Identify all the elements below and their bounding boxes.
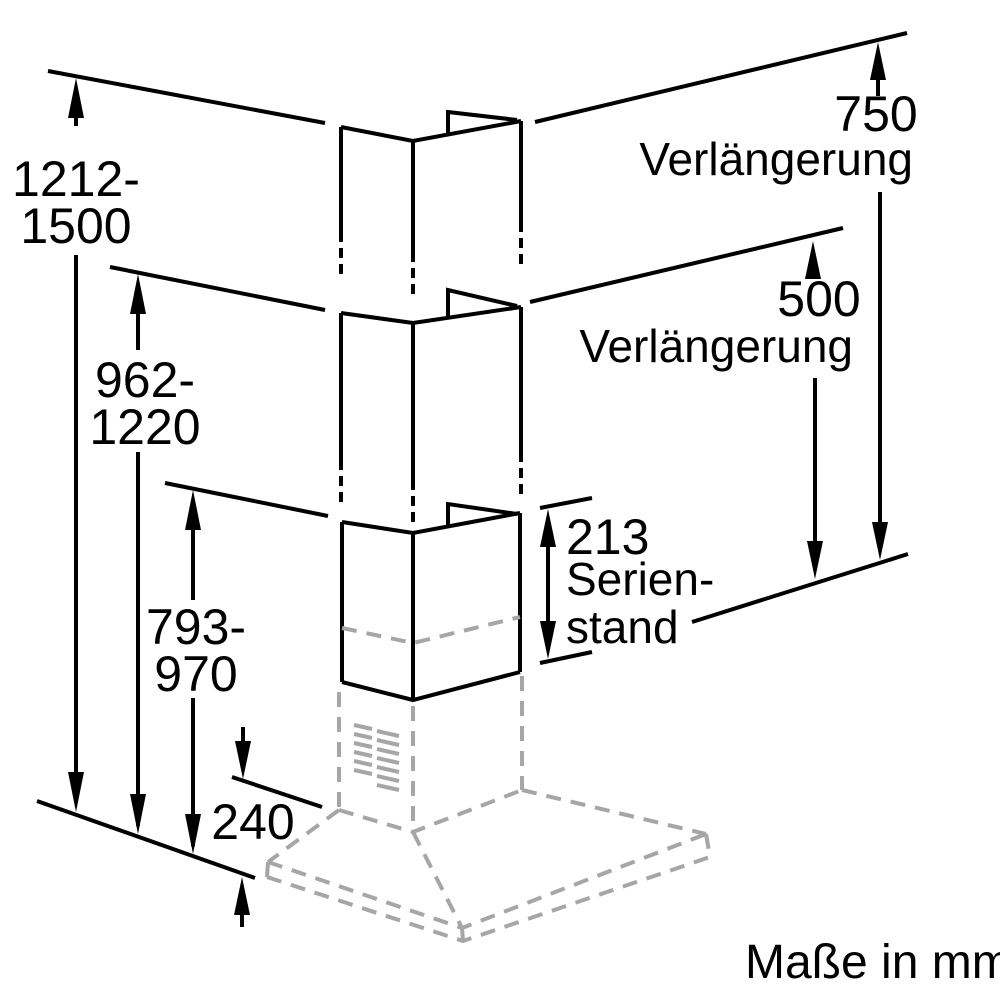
dim-label-970: 970 — [121, 651, 271, 698]
hood-canopy-top-rim — [339, 790, 522, 832]
flue-edge-dashes — [341, 238, 521, 294]
flue-top-edges — [341, 307, 521, 323]
grille-bars-left-column — [354, 725, 372, 774]
hood-canopy-right-slope — [522, 790, 706, 834]
dim-label-962: 962- — [70, 357, 220, 404]
dim-label-750: 750 — [801, 91, 951, 138]
dim-label-serien: Serien- — [566, 556, 714, 602]
arrowhead-down — [540, 621, 556, 659]
dim-label-240: 240 — [203, 799, 303, 846]
hood-inner-top-line — [342, 617, 520, 643]
dim-label-793: 793- — [121, 604, 271, 651]
flue-bottom-edges — [342, 672, 520, 700]
hood-vent-grille — [354, 725, 399, 790]
hood-rim-bottom-edges — [267, 857, 710, 941]
flue-edge-dashes — [341, 468, 521, 522]
arrowhead-down — [185, 814, 201, 854]
flue-section-middle — [341, 290, 521, 522]
arrowhead-down — [235, 741, 251, 779]
ceiling-line-left — [48, 71, 325, 123]
dim-label-1220: 1220 — [70, 404, 220, 451]
arrowhead-down — [68, 772, 84, 812]
arrowhead-down — [807, 541, 823, 579]
grille-bars-right-column — [377, 731, 399, 790]
dim-label-stand: stand — [566, 604, 679, 650]
dim-label-500: 500 — [744, 276, 894, 323]
hood-hidden-outline — [267, 617, 710, 941]
arrowhead-up — [234, 877, 250, 915]
baseline-right — [692, 554, 908, 622]
dim-label-1500: 1500 — [0, 203, 152, 250]
flue-top-edges — [342, 513, 520, 533]
serienstand-top-tick — [540, 498, 592, 508]
hood-rim-corner-edges — [267, 834, 710, 941]
dimension-drawing: 1212- 1500 962- 1220 793- 970 240 750 Ve… — [0, 0, 1000, 1000]
hood-rim-top-edges — [268, 834, 706, 928]
dim-label-750-name: Verlängerung — [613, 136, 913, 182]
flue-section-bottom — [342, 504, 520, 700]
units-note: Maße in mm — [745, 939, 1000, 987]
dim-label-500-name: Verlängerung — [553, 323, 853, 369]
arrowhead-down — [130, 794, 146, 834]
flue-section-top — [341, 112, 521, 294]
flue-top-edges — [341, 121, 521, 141]
dim-label-1212: 1212- — [0, 156, 152, 203]
dimension-213 — [540, 509, 556, 659]
arrowhead-down — [872, 522, 888, 560]
